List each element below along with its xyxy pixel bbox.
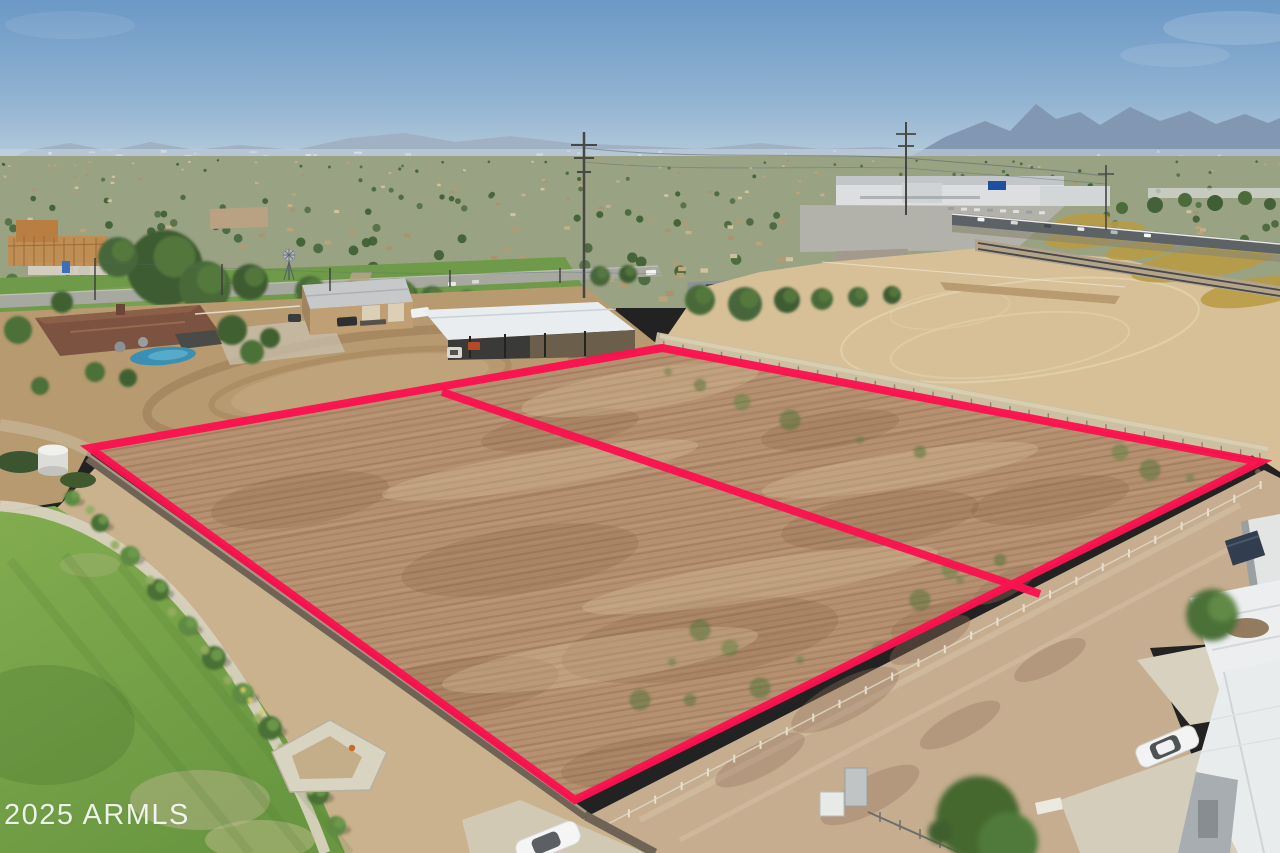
lowes-sign [988,181,1006,190]
hay-barn [423,302,635,360]
shop-building [302,278,413,335]
patio-umbrella [115,342,126,353]
red-tractor [468,342,480,350]
porta-potty [62,261,70,273]
utv [288,314,301,322]
patio-umbrella [138,337,148,347]
aerial-listing-photo: 2025 ARMLS [0,0,1280,853]
chimney [116,304,125,315]
armls-watermark: 2025 ARMLS [4,799,190,832]
dark-pickup [337,316,358,326]
